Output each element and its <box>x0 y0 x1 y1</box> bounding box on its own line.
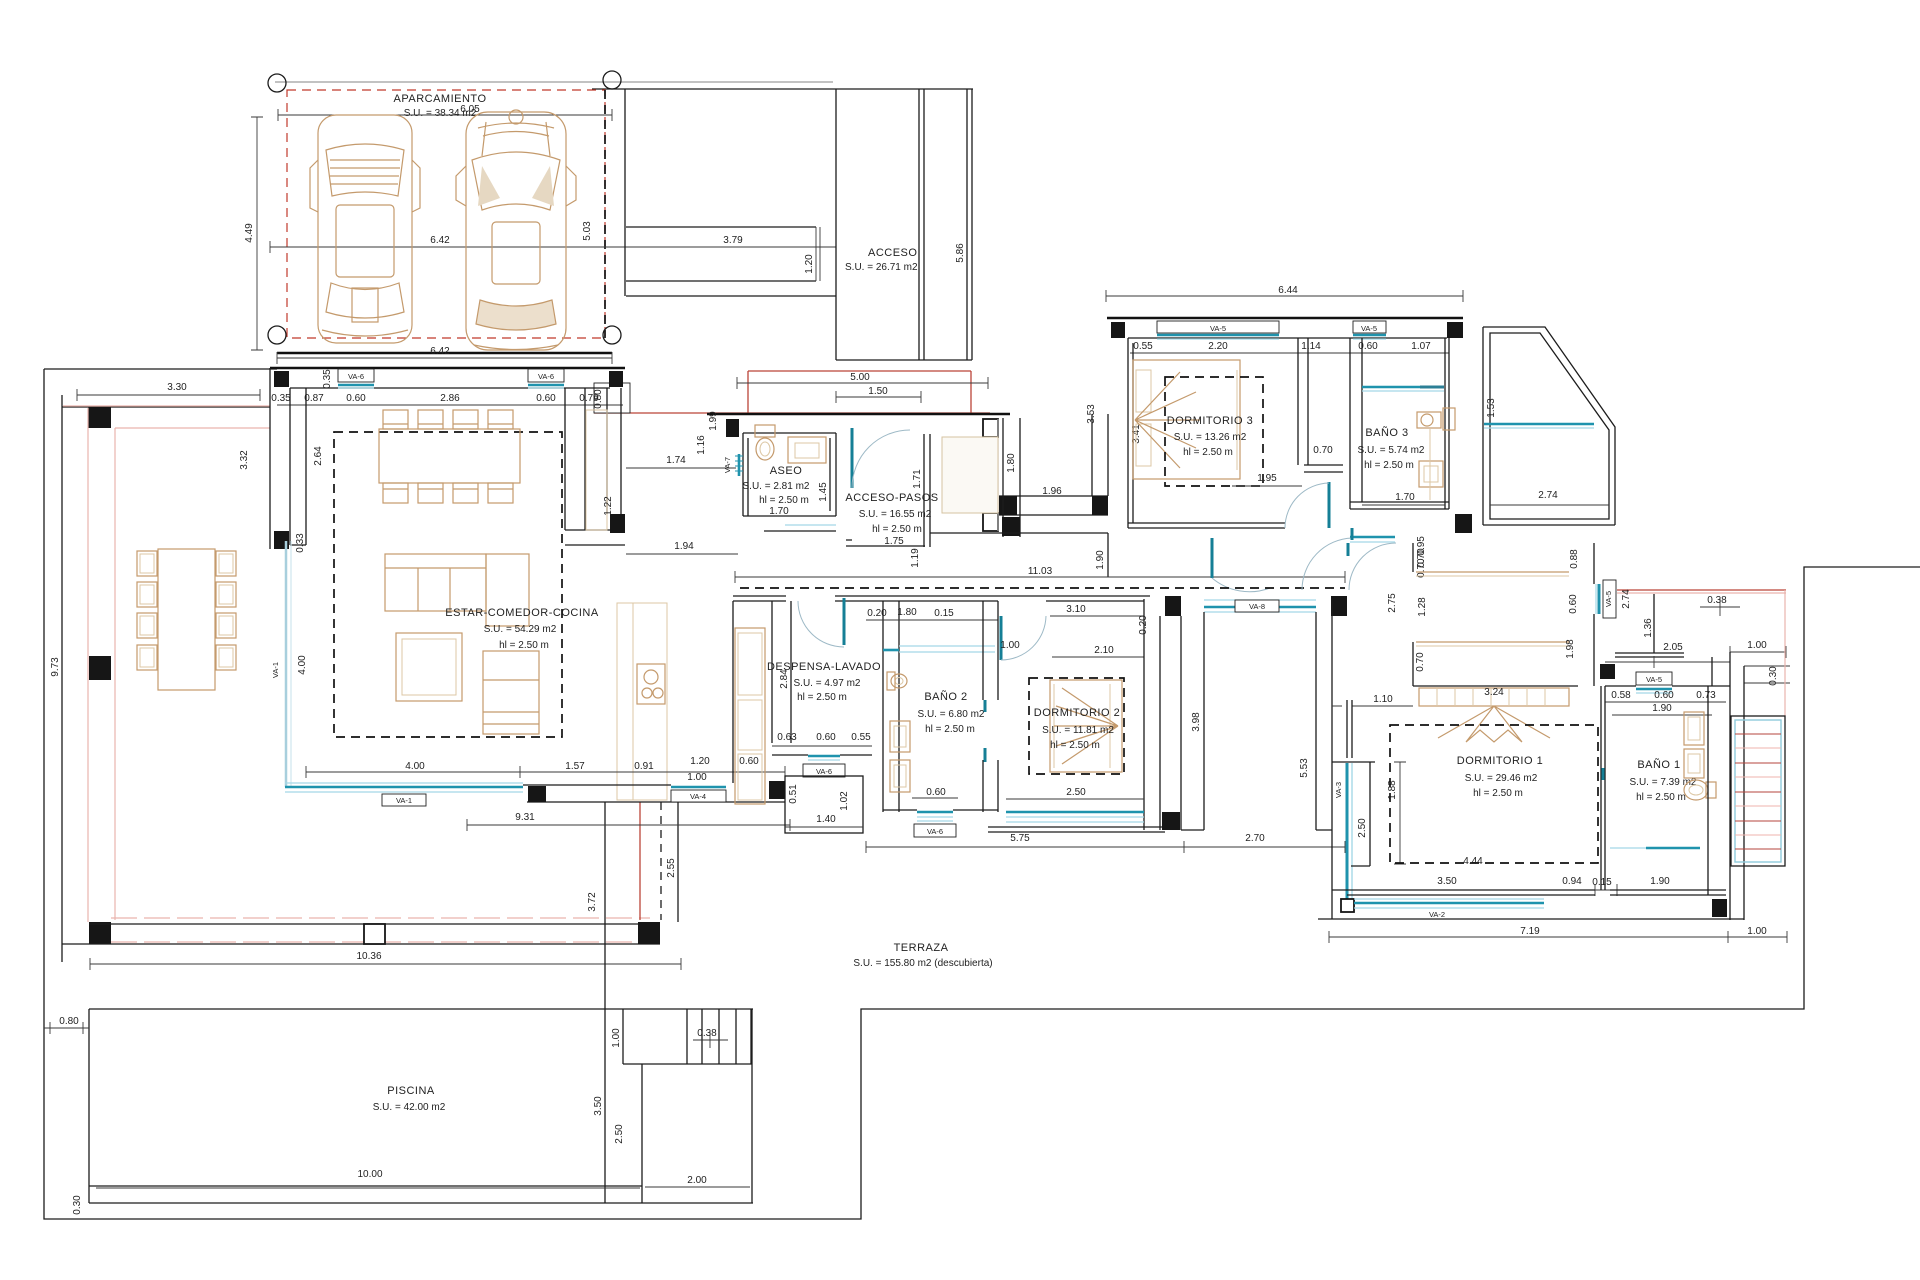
svg-text:S.U. = 11.81 m2: S.U. = 11.81 m2 <box>1042 725 1114 736</box>
svg-text:1.90: 1.90 <box>1652 703 1672 714</box>
svg-text:0.38: 0.38 <box>697 1028 717 1039</box>
svg-text:VA-6: VA-6 <box>538 372 554 381</box>
svg-text:3.32: 3.32 <box>239 450 250 470</box>
svg-text:hl = 2.50 m: hl = 2.50 m <box>1050 740 1100 751</box>
svg-text:VA-8: VA-8 <box>1249 602 1265 611</box>
svg-text:4.00: 4.00 <box>297 655 308 675</box>
svg-text:1.75: 1.75 <box>884 536 904 547</box>
svg-text:S.U. = 5.74 m2: S.U. = 5.74 m2 <box>1358 445 1425 456</box>
svg-text:2.74: 2.74 <box>1538 490 1558 501</box>
svg-text:0.63: 0.63 <box>777 732 797 743</box>
svg-text:S.U. = 16.55 m2: S.U. = 16.55 m2 <box>859 509 932 520</box>
svg-text:1.57: 1.57 <box>565 761 585 772</box>
svg-text:2.00: 2.00 <box>687 1175 707 1186</box>
svg-text:VA-6: VA-6 <box>816 767 832 776</box>
svg-text:0.80: 0.80 <box>59 1016 79 1027</box>
svg-text:6.42: 6.42 <box>430 235 450 246</box>
svg-text:1.00: 1.00 <box>1747 640 1767 651</box>
svg-text:VA-7: VA-7 <box>723 457 732 473</box>
svg-text:0.94: 0.94 <box>1562 876 1582 887</box>
svg-text:1.00: 1.00 <box>611 1028 622 1048</box>
svg-text:0.70: 0.70 <box>1416 548 1427 568</box>
svg-text:6.42: 6.42 <box>430 346 450 357</box>
svg-text:hl = 2.50 m: hl = 2.50 m <box>1364 460 1414 471</box>
svg-text:1.70: 1.70 <box>1395 492 1415 503</box>
svg-text:3.50: 3.50 <box>593 1096 604 1116</box>
svg-text:1.45: 1.45 <box>818 482 829 502</box>
svg-text:0.51: 0.51 <box>788 784 799 804</box>
svg-text:1.98: 1.98 <box>1565 639 1576 659</box>
svg-text:VA-2: VA-2 <box>1429 910 1445 919</box>
svg-text:hl = 2.50 m: hl = 2.50 m <box>759 495 809 506</box>
svg-text:1.28: 1.28 <box>1417 597 1428 617</box>
svg-text:VA-5: VA-5 <box>1361 324 1377 333</box>
svg-text:0.91: 0.91 <box>634 761 654 772</box>
svg-text:S.U. = 13.26 m2: S.U. = 13.26 m2 <box>1174 432 1247 443</box>
svg-text:0.58: 0.58 <box>1611 690 1631 701</box>
svg-text:0.73: 0.73 <box>1696 690 1716 701</box>
svg-text:hl = 2.50 m: hl = 2.50 m <box>872 524 922 535</box>
svg-text:0.33: 0.33 <box>295 533 306 553</box>
svg-text:2.50: 2.50 <box>1357 818 1368 838</box>
svg-text:S.U. = 7.39 m2: S.U. = 7.39 m2 <box>1630 777 1697 788</box>
svg-text:3.53: 3.53 <box>1086 404 1097 424</box>
svg-text:1.02: 1.02 <box>839 791 850 811</box>
svg-text:0.70: 0.70 <box>1313 445 1333 456</box>
svg-text:1.40: 1.40 <box>816 814 836 825</box>
svg-text:3.10: 3.10 <box>1066 604 1086 615</box>
svg-text:S.U. = 155.80 m2 (descubierta): S.U. = 155.80 m2 (descubierta) <box>853 958 992 969</box>
svg-text:PISCINA: PISCINA <box>387 1085 435 1097</box>
svg-text:hl = 2.50 m: hl = 2.50 m <box>1473 788 1523 799</box>
svg-text:0.88: 0.88 <box>1569 549 1580 569</box>
svg-text:0.70: 0.70 <box>1415 652 1426 672</box>
svg-text:0.20: 0.20 <box>867 608 887 619</box>
svg-text:0.60: 0.60 <box>346 393 366 404</box>
svg-text:3.72: 3.72 <box>587 892 598 912</box>
svg-text:1.07: 1.07 <box>1411 341 1431 352</box>
svg-text:1.20: 1.20 <box>804 254 815 274</box>
svg-text:0.35: 0.35 <box>322 369 333 389</box>
svg-text:2.50: 2.50 <box>614 1124 625 1144</box>
svg-text:BAÑO 1: BAÑO 1 <box>1637 758 1680 771</box>
svg-text:0.60: 0.60 <box>1358 341 1378 352</box>
svg-text:2.05: 2.05 <box>1663 642 1683 653</box>
svg-text:ASEO: ASEO <box>770 465 803 477</box>
svg-text:BAÑO 3: BAÑO 3 <box>1365 426 1408 439</box>
svg-text:3.98: 3.98 <box>1191 712 1202 732</box>
svg-text:S.U. = 29.46 m2: S.U. = 29.46 m2 <box>1465 773 1538 784</box>
svg-text:3.79: 3.79 <box>723 235 743 246</box>
svg-text:hl = 2.50 m: hl = 2.50 m <box>925 724 975 735</box>
svg-text:5.03: 5.03 <box>582 221 593 241</box>
svg-text:VA-1: VA-1 <box>271 662 280 678</box>
svg-text:1.19: 1.19 <box>910 548 921 568</box>
svg-text:2.86: 2.86 <box>440 393 460 404</box>
svg-text:0.87: 0.87 <box>304 393 324 404</box>
svg-text:S.U. = 2.81 m2: S.U. = 2.81 m2 <box>743 481 810 492</box>
svg-text:S.U. = 4.97 m2: S.U. = 4.97 m2 <box>794 678 861 689</box>
svg-text:0.15: 0.15 <box>934 608 954 619</box>
svg-text:0.35: 0.35 <box>271 393 291 404</box>
svg-text:0.60: 0.60 <box>816 732 836 743</box>
svg-text:1.88: 1.88 <box>1387 780 1398 800</box>
svg-text:0.60: 0.60 <box>1568 594 1579 614</box>
svg-text:1.71: 1.71 <box>912 469 923 489</box>
svg-text:2.50: 2.50 <box>1066 787 1086 798</box>
svg-text:VA-5: VA-5 <box>1646 675 1662 684</box>
svg-text:7.19: 7.19 <box>1520 926 1540 937</box>
svg-text:1.74: 1.74 <box>666 455 686 466</box>
svg-text:1.80: 1.80 <box>897 607 917 618</box>
svg-text:1.80: 1.80 <box>1006 453 1017 473</box>
svg-text:BAÑO 2: BAÑO 2 <box>924 690 967 703</box>
svg-text:1.16: 1.16 <box>696 435 707 455</box>
svg-text:VA-3: VA-3 <box>1334 782 1343 798</box>
svg-text:1.94: 1.94 <box>674 541 694 552</box>
svg-text:1.50: 1.50 <box>868 386 888 397</box>
svg-text:0.55: 0.55 <box>851 732 871 743</box>
svg-text:2.75: 2.75 <box>1387 593 1398 613</box>
svg-text:VA-5: VA-5 <box>1210 324 1226 333</box>
svg-text:VA-6: VA-6 <box>348 372 364 381</box>
svg-text:S.U. = 54.29 m2: S.U. = 54.29 m2 <box>484 624 557 635</box>
svg-text:0.60: 0.60 <box>739 756 759 767</box>
svg-text:5.53: 5.53 <box>1299 758 1310 778</box>
svg-text:0.60: 0.60 <box>536 393 556 404</box>
svg-text:0.30: 0.30 <box>72 1195 83 1215</box>
svg-text:1.95: 1.95 <box>1257 473 1277 484</box>
svg-text:1.00: 1.00 <box>1747 926 1767 937</box>
svg-text:DORMITORIO 3: DORMITORIO 3 <box>1167 415 1253 427</box>
svg-text:2.84: 2.84 <box>779 669 790 689</box>
svg-text:2.55: 2.55 <box>666 858 677 878</box>
svg-text:ACCESO: ACCESO <box>868 247 917 259</box>
svg-text:0.55: 0.55 <box>1133 341 1153 352</box>
svg-text:1.96: 1.96 <box>1042 486 1062 497</box>
svg-text:S.U. = 26.71 m2: S.U. = 26.71 m2 <box>845 262 918 273</box>
svg-text:9.31: 9.31 <box>515 812 535 823</box>
svg-text:1.36: 1.36 <box>1643 618 1654 638</box>
svg-text:VA-6: VA-6 <box>927 827 943 836</box>
svg-text:1.70: 1.70 <box>769 506 789 517</box>
svg-text:TERRAZA: TERRAZA <box>894 942 949 954</box>
svg-text:2.10: 2.10 <box>1094 645 1114 656</box>
svg-text:10.00: 10.00 <box>357 1169 382 1180</box>
svg-text:3.30: 3.30 <box>167 382 187 393</box>
svg-text:2.64: 2.64 <box>313 446 324 466</box>
svg-text:1.10: 1.10 <box>1373 694 1393 705</box>
svg-text:0.60: 0.60 <box>926 787 946 798</box>
svg-text:4.49: 4.49 <box>244 223 255 243</box>
svg-text:1.14: 1.14 <box>1301 341 1321 352</box>
svg-text:ACCESO-PASOS: ACCESO-PASOS <box>845 492 938 504</box>
svg-text:9.73: 9.73 <box>50 657 61 677</box>
svg-text:VA-1: VA-1 <box>396 796 412 805</box>
svg-text:VA-4: VA-4 <box>690 792 706 801</box>
svg-text:5.00: 5.00 <box>850 372 870 383</box>
svg-text:11.03: 11.03 <box>1028 566 1053 577</box>
svg-text:1.22: 1.22 <box>603 496 614 516</box>
svg-text:hl = 2.50 m: hl = 2.50 m <box>797 692 847 703</box>
svg-text:0.79: 0.79 <box>579 393 599 404</box>
svg-text:3.24: 3.24 <box>1484 687 1504 698</box>
svg-text:hl = 2.50 m: hl = 2.50 m <box>1183 447 1233 458</box>
svg-text:6.05: 6.05 <box>460 104 480 115</box>
svg-text:1.53: 1.53 <box>1486 398 1497 418</box>
svg-text:0.60: 0.60 <box>1654 690 1674 701</box>
svg-text:DORMITORIO 1: DORMITORIO 1 <box>1457 755 1543 767</box>
svg-text:2.70: 2.70 <box>1245 833 1265 844</box>
svg-text:S.U. = 42.00 m2: S.U. = 42.00 m2 <box>373 1102 446 1113</box>
svg-text:4.00: 4.00 <box>405 761 425 772</box>
svg-text:1.00: 1.00 <box>1000 640 1020 651</box>
svg-text:ESTAR-COMEDOR-COCINA: ESTAR-COMEDOR-COCINA <box>445 607 599 619</box>
svg-text:1.90: 1.90 <box>1650 876 1670 887</box>
svg-text:6.44: 6.44 <box>1278 285 1298 296</box>
svg-text:1.20: 1.20 <box>690 756 710 767</box>
svg-text:1.90: 1.90 <box>1095 550 1106 570</box>
svg-text:1.00: 1.00 <box>687 772 707 783</box>
svg-text:hl = 2.50 m: hl = 2.50 m <box>499 640 549 651</box>
svg-text:DORMITORIO 2: DORMITORIO 2 <box>1034 707 1120 719</box>
svg-text:1.99: 1.99 <box>708 411 719 431</box>
svg-text:3.50: 3.50 <box>1437 876 1457 887</box>
svg-text:0.38: 0.38 <box>1707 595 1727 606</box>
svg-text:5.86: 5.86 <box>955 243 966 263</box>
svg-text:2.20: 2.20 <box>1208 341 1228 352</box>
svg-text:VA-5: VA-5 <box>1604 591 1613 607</box>
svg-text:4.44: 4.44 <box>1463 856 1483 867</box>
svg-text:2.74: 2.74 <box>1621 589 1632 609</box>
svg-text:S.U. = 6.80 m2: S.U. = 6.80 m2 <box>918 709 985 720</box>
svg-text:hl = 2.50 m: hl = 2.50 m <box>1636 792 1686 803</box>
svg-text:10.36: 10.36 <box>356 951 381 962</box>
svg-text:5.75: 5.75 <box>1010 833 1030 844</box>
